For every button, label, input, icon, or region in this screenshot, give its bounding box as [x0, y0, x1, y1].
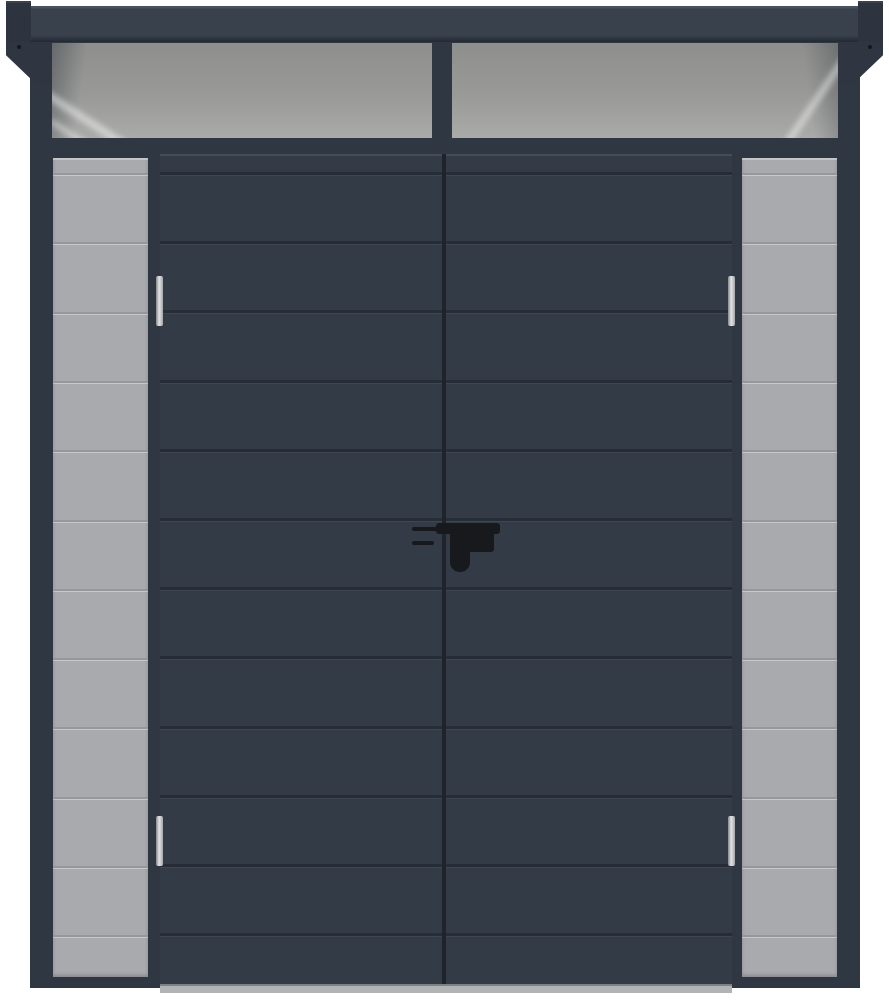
door-groove [446, 380, 732, 383]
door-groove [160, 795, 442, 798]
panel-plank-line [53, 727, 148, 729]
door-sill [160, 984, 732, 993]
handle-lock-body [468, 530, 494, 552]
panel-plank-line [742, 797, 837, 799]
panel-plank-line [742, 312, 837, 314]
door-groove [446, 933, 732, 936]
panel-plank-line [742, 173, 837, 175]
door-groove [160, 587, 442, 590]
panel-plank-line [53, 658, 148, 660]
panel-plank-line [742, 658, 837, 660]
roof-cap-right [858, 1, 883, 42]
panel-plank-line [742, 381, 837, 383]
panel-plank-line [53, 797, 148, 799]
panel-plank-line [53, 312, 148, 314]
door-groove [446, 172, 732, 175]
glass-edge-shadow [452, 43, 838, 138]
door-groove [446, 449, 732, 452]
panel-plank-line [53, 935, 148, 937]
door-groove [160, 933, 442, 936]
door-groove [160, 656, 442, 659]
door-groove [446, 656, 732, 659]
panel-plank-line [53, 866, 148, 868]
door-groove [160, 241, 442, 244]
door-groove [446, 241, 732, 244]
transom-window-left [52, 43, 432, 138]
panel-plank-line [742, 520, 837, 522]
panel-plank-line [53, 450, 148, 452]
hinge-right-bottom [728, 816, 735, 866]
door-left [160, 154, 442, 986]
door-groove [160, 518, 442, 521]
side-panel-right [742, 158, 837, 977]
door-right [446, 154, 732, 986]
screw-hole-icon [17, 45, 21, 49]
panel-plank-line [742, 242, 837, 244]
door-groove [160, 380, 442, 383]
roof-bracket-left [6, 42, 52, 86]
door-groove [160, 726, 442, 729]
handle-grip [450, 530, 470, 572]
hinge-right-top [728, 276, 735, 326]
transom-mullion [432, 42, 452, 142]
door-groove [446, 726, 732, 729]
glass-edge-shadow [52, 43, 432, 138]
handle-striker-plate [412, 541, 434, 545]
door-gap [442, 154, 446, 986]
panel-plank-line [742, 589, 837, 591]
door-groove [446, 310, 732, 313]
handle-striker-plate [412, 527, 438, 531]
door-groove [160, 449, 442, 452]
panel-plank-line [53, 242, 148, 244]
door-groove [446, 587, 732, 590]
transom-window-right [452, 43, 838, 138]
door-groove [160, 864, 442, 867]
side-panel-left [53, 158, 148, 977]
door-groove [446, 864, 732, 867]
roof-bracket-right [837, 42, 883, 86]
shed-product-photo [0, 0, 889, 1000]
door-groove [446, 795, 732, 798]
door-groove [160, 310, 442, 313]
door-groove [160, 172, 442, 175]
panel-plank-line [53, 381, 148, 383]
hinge-left-top [156, 276, 163, 326]
panel-plank-line [742, 450, 837, 452]
roof-fascia [6, 6, 883, 42]
panel-plank-line [742, 866, 837, 868]
screw-hole-icon [868, 45, 872, 49]
panel-plank-line [53, 589, 148, 591]
hinge-left-bottom [156, 816, 163, 866]
panel-plank-line [742, 727, 837, 729]
roof-cap-left [6, 1, 31, 42]
door-groove [446, 518, 732, 521]
panel-plank-line [53, 173, 148, 175]
panel-plank-line [53, 520, 148, 522]
panel-plank-line [742, 935, 837, 937]
